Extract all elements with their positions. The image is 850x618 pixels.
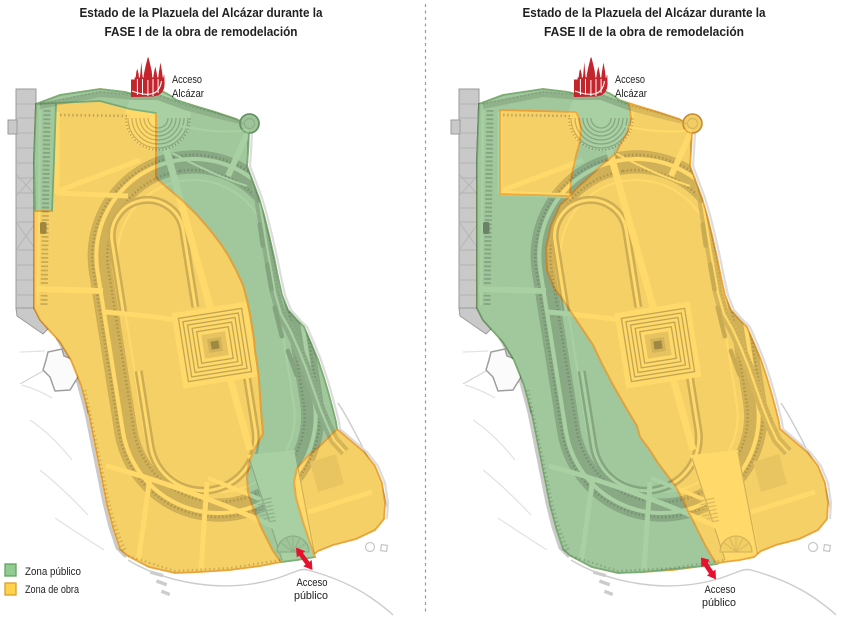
- svg-text:FASE II de la obra de remodela: FASE II de la obra de remodelación: [544, 24, 744, 39]
- svg-text:Estado de la Plazuela del Alcá: Estado de la Plazuela del Alcázar durant…: [523, 5, 767, 20]
- svg-text:público: público: [702, 597, 736, 609]
- svg-text:Alcázar: Alcázar: [172, 88, 204, 100]
- svg-text:FASE I de la obra de remodelac: FASE I de la obra de remodelación: [105, 24, 298, 39]
- svg-text:Alcázar: Alcázar: [615, 88, 647, 100]
- svg-text:Zona público: Zona público: [25, 566, 81, 578]
- svg-text:Zona de obra: Zona de obra: [25, 584, 80, 596]
- svg-text:Acceso: Acceso: [705, 584, 736, 596]
- svg-text:Acceso: Acceso: [615, 74, 645, 86]
- svg-text:público: público: [294, 590, 328, 602]
- svg-text:Estado de la Plazuela del Alcá: Estado de la Plazuela del Alcázar durant…: [80, 5, 324, 20]
- svg-text:Acceso: Acceso: [172, 74, 202, 86]
- svg-text:Acceso: Acceso: [297, 577, 328, 589]
